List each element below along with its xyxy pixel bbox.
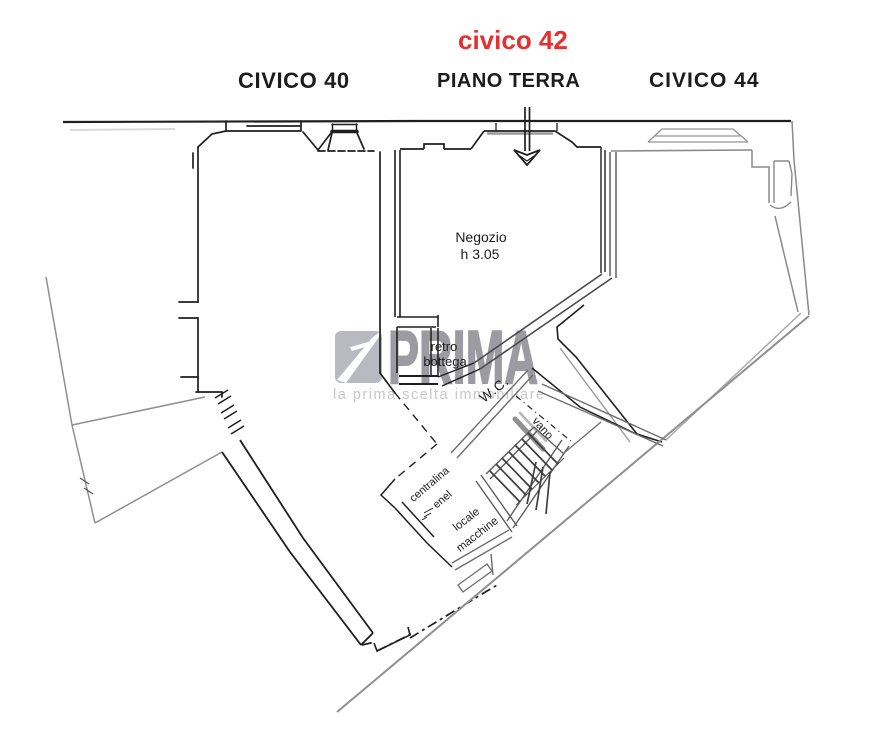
svg-text:h 3.05: h 3.05	[461, 246, 500, 262]
svg-text:CIVICO 40: CIVICO 40	[238, 68, 350, 93]
svg-text:Negozio: Negozio	[455, 229, 507, 245]
svg-text:bottega: bottega	[423, 354, 467, 369]
svg-text:CIVICO 44: CIVICO 44	[649, 69, 760, 92]
svg-text:civico 42: civico 42	[458, 25, 568, 55]
svg-text:retro: retro	[431, 339, 458, 354]
svg-text:PIANO TERRA: PIANO TERRA	[437, 70, 580, 92]
